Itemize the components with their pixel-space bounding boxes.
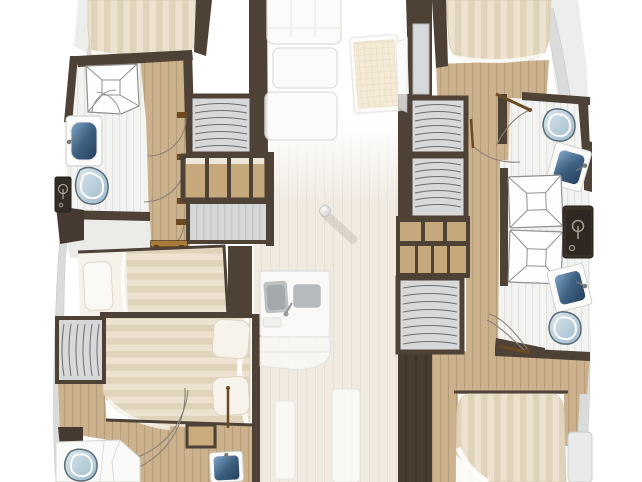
faucet-icon xyxy=(284,312,289,317)
stbd-hanging-locker-1 xyxy=(410,98,466,154)
port-berth-panel xyxy=(188,202,268,242)
pillow xyxy=(83,261,113,310)
port-shower-mixer xyxy=(55,177,71,212)
companionway-strip-1 xyxy=(275,401,295,479)
pillow xyxy=(212,376,250,416)
port-nightstand xyxy=(187,425,215,447)
stbd-aft-hanging-locker xyxy=(398,278,462,352)
port-aft-washbasin xyxy=(209,451,244,482)
port-aft-toilet xyxy=(65,449,97,481)
starboard-hull xyxy=(396,0,593,482)
stbd-shower-mixer xyxy=(563,206,593,258)
port-single-berth xyxy=(78,246,228,320)
stbd-hanging-locker-2 xyxy=(410,156,466,218)
galley-counter xyxy=(260,337,330,370)
stbd-aft-bed xyxy=(454,392,568,482)
stbd-engine-bay-band xyxy=(398,352,432,482)
stbd-shelving-unit xyxy=(396,216,470,278)
stbd-toilet-2 xyxy=(549,312,581,344)
companionway-strip-2 xyxy=(332,389,360,482)
floorplan-canvas xyxy=(0,0,642,482)
port-shower-stall xyxy=(86,64,139,114)
stbd-shower-stall-1 xyxy=(508,175,563,228)
port-forward-washbasin xyxy=(66,116,102,166)
stbd-side-shelf xyxy=(568,432,592,482)
pillow xyxy=(212,319,251,359)
port-forward-toilet xyxy=(76,168,109,205)
floorplan-page xyxy=(0,0,642,482)
stbd-toilet-1 xyxy=(543,109,575,141)
port-double-bed xyxy=(100,312,254,428)
galley-double-sink xyxy=(260,271,330,370)
saloon-table xyxy=(349,34,412,116)
port-shelving-unit xyxy=(183,156,267,200)
port-hanging-locker xyxy=(190,96,252,154)
saloon-seating xyxy=(265,0,341,140)
port-mid-hanging-locker xyxy=(57,318,104,382)
stbd-door-panel xyxy=(413,24,429,94)
